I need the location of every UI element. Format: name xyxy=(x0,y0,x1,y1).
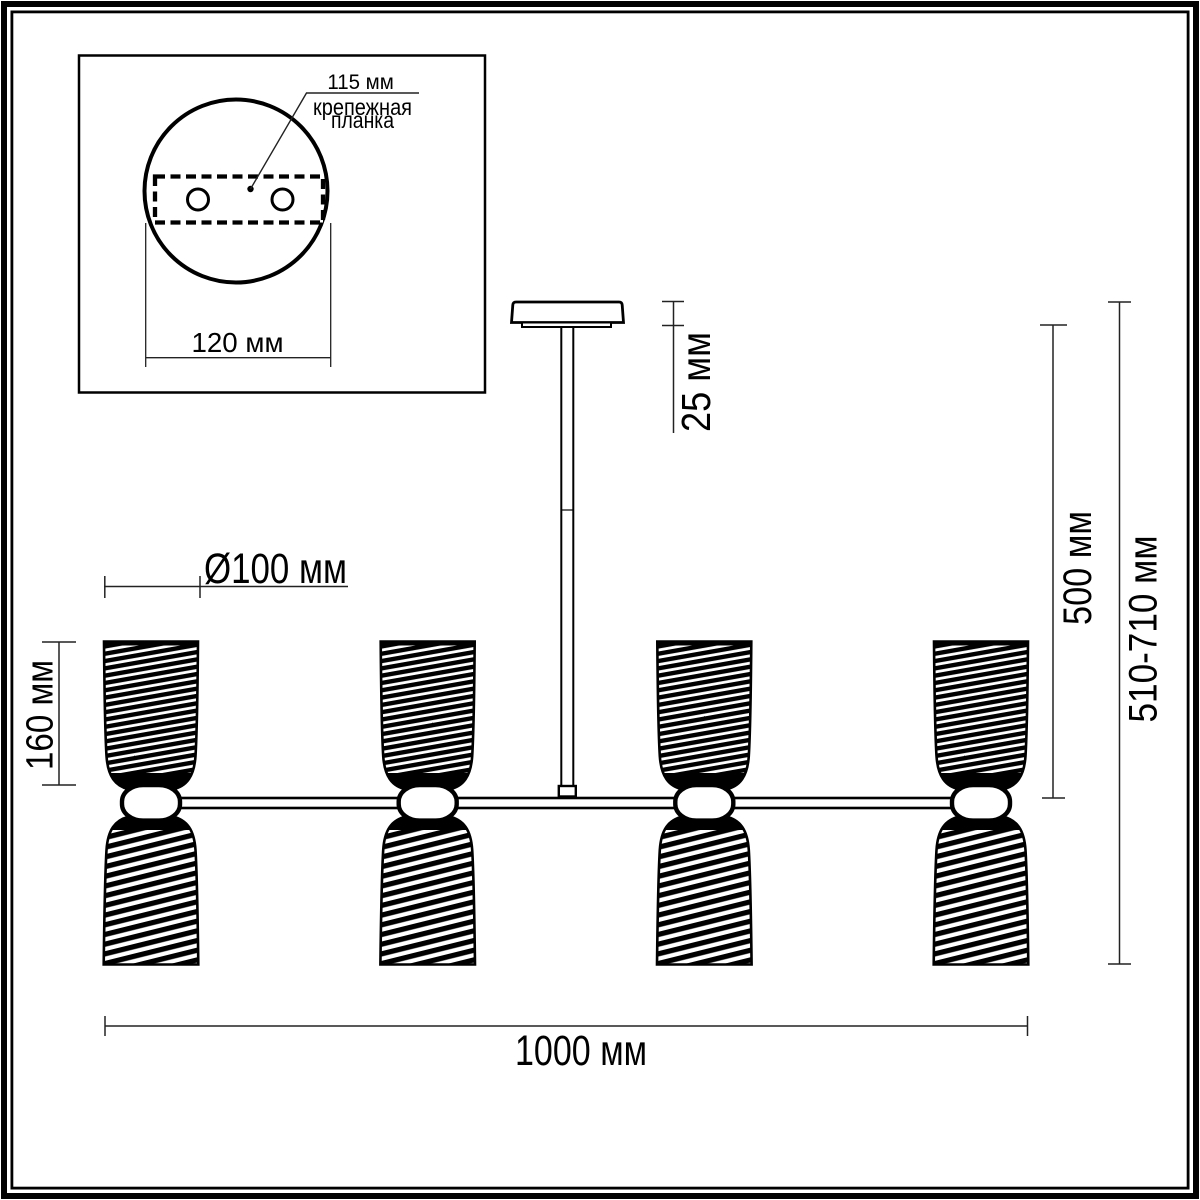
svg-text:планка: планка xyxy=(331,107,394,133)
svg-text:Ø100 мм: Ø100 мм xyxy=(204,545,347,593)
svg-text:120 мм: 120 мм xyxy=(192,327,284,358)
svg-text:510-710 мм: 510-710 мм xyxy=(1122,536,1166,723)
svg-text:1000 мм: 1000 мм xyxy=(515,1027,647,1075)
svg-text:160 мм: 160 мм xyxy=(20,660,62,770)
svg-text:25 мм: 25 мм xyxy=(673,332,719,432)
svg-text:115 мм: 115 мм xyxy=(327,71,394,94)
svg-text:500 мм: 500 мм xyxy=(1056,511,1100,625)
